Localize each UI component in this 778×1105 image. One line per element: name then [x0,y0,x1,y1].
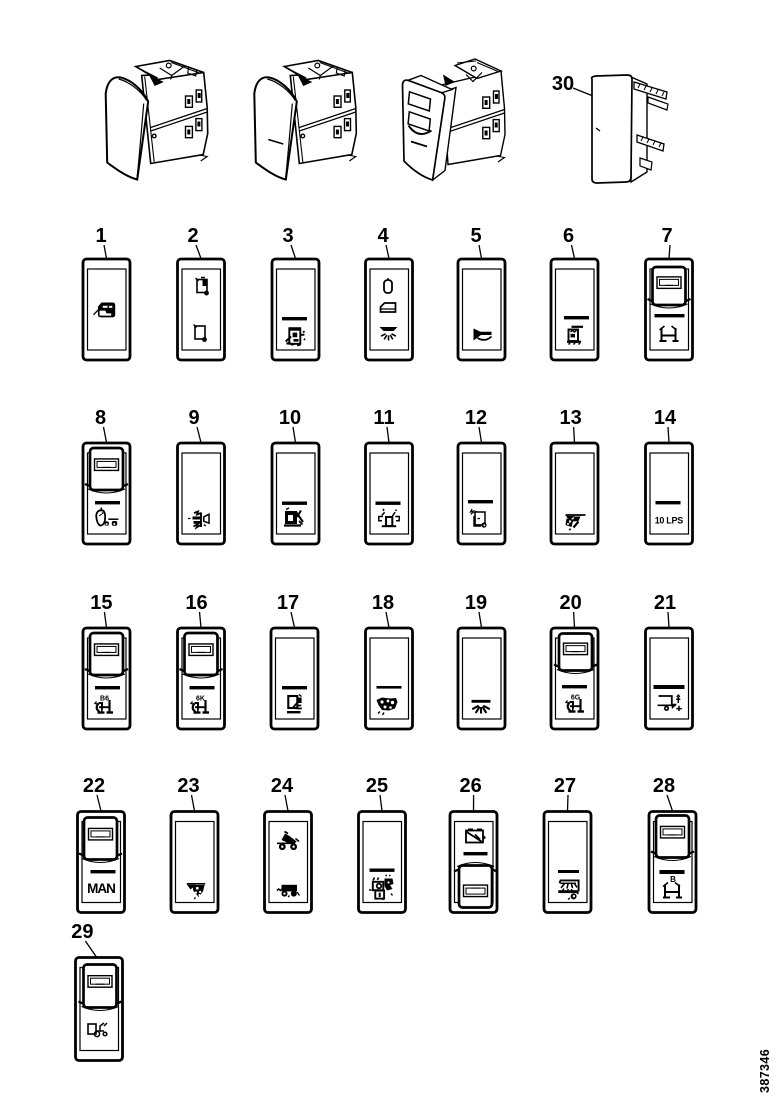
svg-text:6G: 6G [571,695,581,702]
svg-text:23: 23 [177,775,199,797]
svg-text:6: 6 [563,225,574,247]
svg-text:387346: 387346 [758,1049,772,1093]
svg-text:7: 7 [661,225,672,247]
svg-text:25: 25 [366,775,388,797]
svg-text:20: 20 [559,592,581,614]
svg-text:17: 17 [277,592,299,614]
svg-text:3: 3 [282,225,293,247]
svg-text:6K: 6K [196,696,205,703]
svg-text:30: 30 [552,73,574,95]
svg-text:22: 22 [83,775,105,797]
svg-text:5: 5 [470,225,481,247]
svg-text:21: 21 [654,592,676,614]
svg-text:1: 1 [95,225,106,247]
svg-text:10 LPS: 10 LPS [655,516,684,526]
svg-text:8: 8 [95,407,106,429]
svg-text:13: 13 [559,407,581,429]
svg-text:28: 28 [653,775,675,797]
svg-text:9: 9 [188,407,199,429]
svg-text:4: 4 [377,225,389,247]
svg-text:10: 10 [279,407,301,429]
svg-text:19: 19 [465,592,487,614]
svg-text:14: 14 [654,407,677,429]
svg-text:11: 11 [373,407,394,429]
svg-text:27: 27 [554,775,576,797]
svg-text:15: 15 [90,592,112,614]
svg-text:2: 2 [187,225,198,247]
svg-text:26: 26 [459,775,481,797]
svg-text:24: 24 [271,775,294,797]
svg-text:12: 12 [465,407,487,429]
svg-text:16: 16 [185,592,207,614]
svg-text:B6: B6 [100,696,109,703]
svg-text:18: 18 [372,592,394,614]
svg-text:29: 29 [71,921,93,943]
svg-text:MAN: MAN [87,881,115,896]
